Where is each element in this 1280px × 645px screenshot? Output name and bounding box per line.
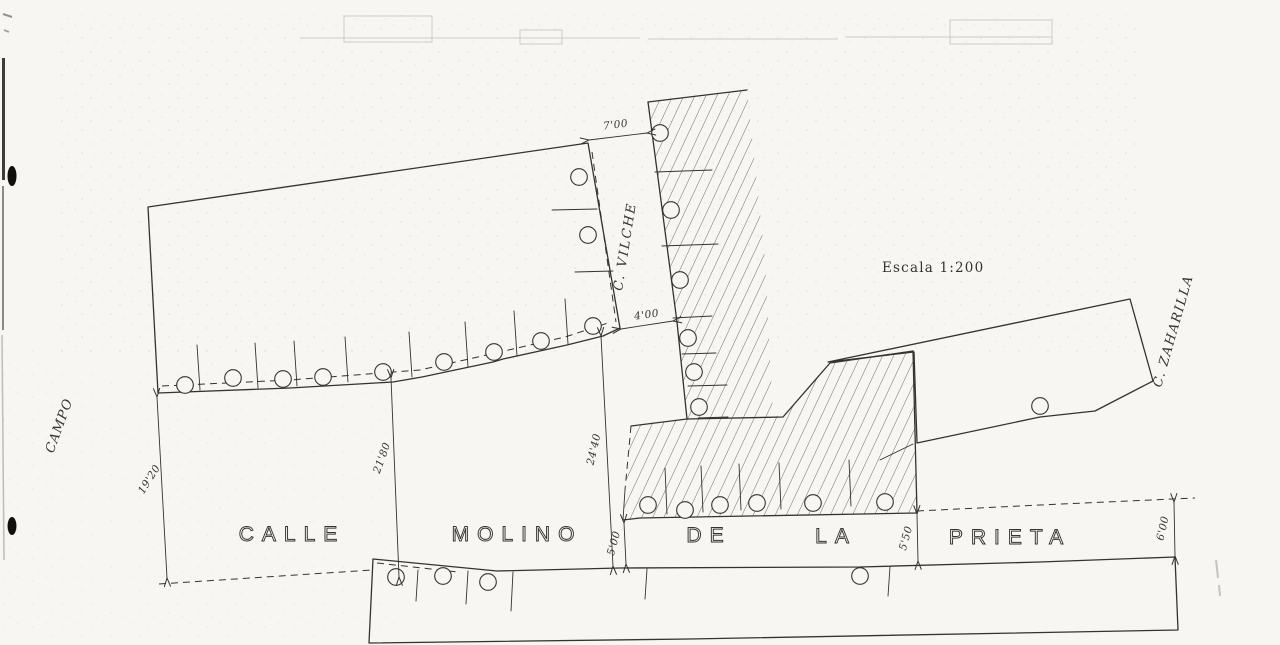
street-label-zaharilla: C. ZAHARILLA <box>1150 273 1197 389</box>
scanned-site-plan: 7'00 4'00 19'20 21'80 24'40 5'00 5'50 6'… <box>0 0 1280 645</box>
street-word-molino: MOLINO <box>452 523 583 546</box>
tree-circle <box>486 344 503 361</box>
tree-circle <box>663 202 680 219</box>
tree-circle <box>652 125 669 142</box>
tree-circle <box>680 330 697 347</box>
dimension-label: 6'00 <box>1154 515 1171 542</box>
dimension-label: 5'00 <box>605 530 623 557</box>
tree-circle <box>480 574 497 591</box>
tree-circle <box>315 369 332 386</box>
dimension-label: 24'40 <box>584 432 603 467</box>
tree-circle <box>275 371 292 388</box>
binder-mark-upper <box>8 166 17 186</box>
street-edge-dashed-east <box>917 498 1195 511</box>
tree-circle <box>571 169 588 186</box>
scale-label: Escala 1:200 <box>882 260 984 276</box>
tree-circle <box>852 568 869 585</box>
tree-circle <box>585 318 602 335</box>
building-block-south <box>369 557 1178 643</box>
site-plan-drawing: 7'00 4'00 19'20 21'80 24'40 5'00 5'50 6'… <box>0 0 1280 645</box>
tree-circle <box>177 377 194 394</box>
tree-circle <box>533 333 550 350</box>
tree-circle <box>225 370 242 387</box>
scan-artifact-right-smudge <box>1216 560 1220 596</box>
tree-circle <box>712 497 729 514</box>
street-word-de: DE <box>686 524 731 547</box>
tree-circle <box>805 495 822 512</box>
dimension-width-street-vilche-mouth: 24'40 <box>584 336 613 566</box>
street-word-la: LA <box>815 525 857 548</box>
tree-circle <box>580 227 597 244</box>
scan-noise-texture-lower <box>0 350 400 640</box>
tree-circle <box>1032 398 1049 415</box>
tree-circle <box>375 364 392 381</box>
tree-circle <box>435 568 452 585</box>
tree-circle <box>691 399 708 416</box>
dimension-width-street-center: 5'00 <box>605 523 626 564</box>
tree-circle <box>677 502 694 519</box>
dimension-width-street-far-east: 6'00 <box>1154 502 1175 556</box>
tree-circle <box>436 354 453 371</box>
dimension-label: 5'50 <box>897 525 915 552</box>
tree-circle <box>640 497 657 514</box>
tree-circle <box>749 495 766 512</box>
scan-noise-texture <box>60 15 1140 355</box>
tree-circle <box>388 569 405 586</box>
dimension-width-street-east: 5'50 <box>897 514 918 561</box>
street-word-prieta: PRIETA <box>949 526 1071 549</box>
street-word-calle: CALLE <box>239 523 346 546</box>
tree-circle <box>672 272 689 289</box>
binder-mark-lower <box>8 517 17 535</box>
tree-circle <box>686 364 703 381</box>
tree-circle <box>877 494 894 511</box>
